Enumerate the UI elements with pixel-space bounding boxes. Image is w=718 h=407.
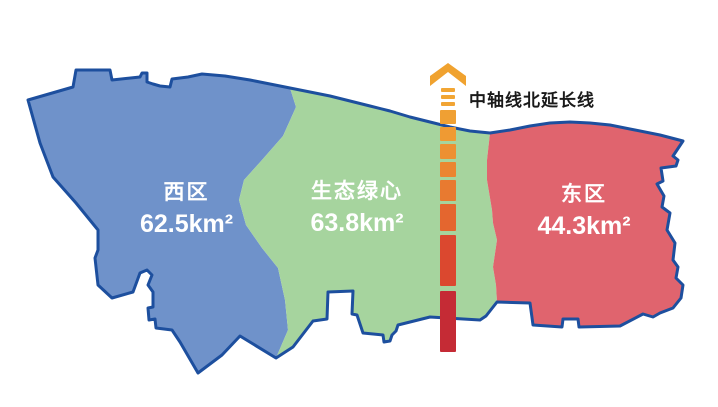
axis-dash-segment (440, 235, 456, 286)
east-region-shape (487, 122, 683, 327)
map-diagram: 西区 62.5km² 生态绿心 63.8km² 东区 44.3km² 中轴线北延… (0, 0, 718, 407)
axis-dash-segment (440, 204, 456, 231)
axis-dash-segment (441, 88, 455, 92)
axis-dash-segment (440, 162, 456, 177)
district-map-svg (0, 0, 718, 407)
axis-dash-segment (440, 180, 456, 201)
axis-annotation-label: 中轴线北延长线 (469, 86, 595, 111)
axis-dash-segment (441, 102, 455, 106)
axis-dash-segment (440, 144, 456, 159)
axis-dash-segment (440, 291, 456, 352)
axis-arrow-icon (430, 63, 466, 86)
axis-dash-segment (441, 95, 455, 99)
axis-dash-segment (440, 110, 456, 124)
axis-dash-segment (440, 127, 456, 141)
axis-dashed-line (440, 88, 456, 352)
